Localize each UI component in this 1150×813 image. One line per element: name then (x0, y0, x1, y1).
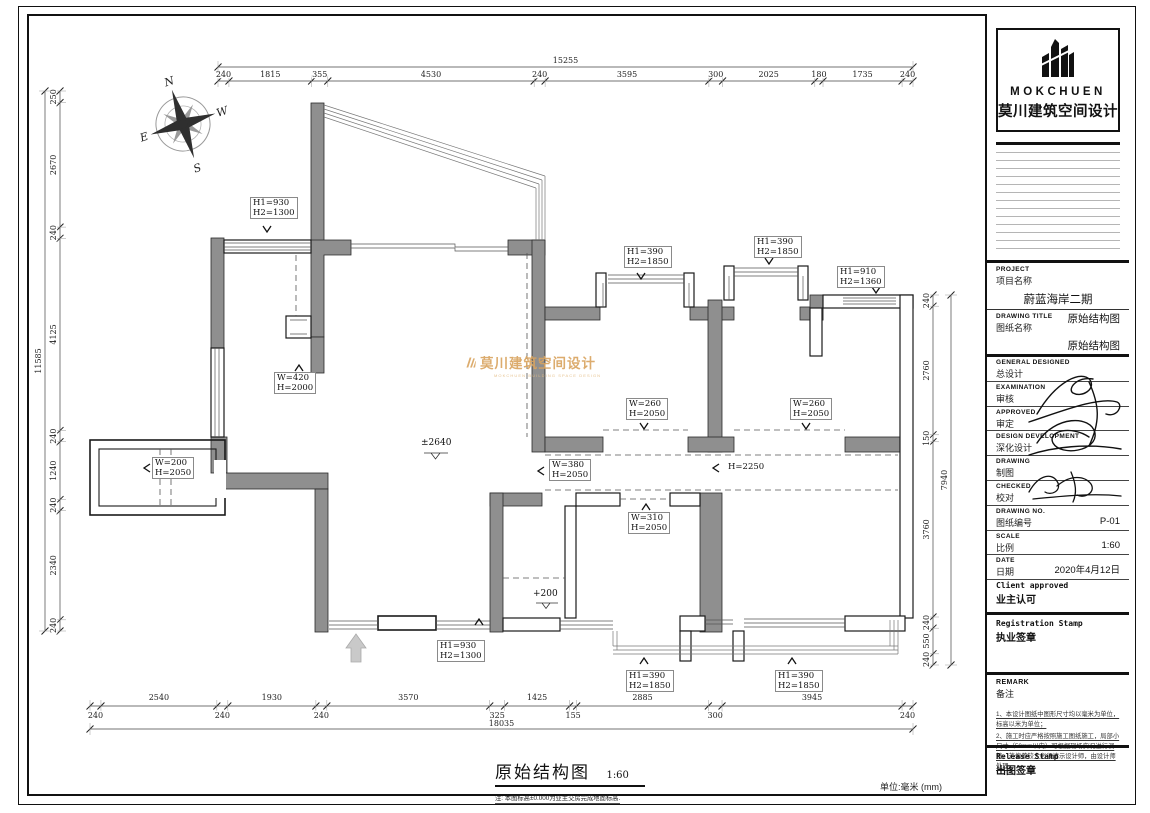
tag-line: W=310 (631, 513, 667, 523)
title-block-row: GENERAL DESIGNED 总设计 (987, 357, 1129, 382)
bath-level: +200 (533, 589, 558, 599)
company-name: 莫川建筑空间设计 (998, 100, 1118, 121)
dim-value: 155 (566, 711, 581, 720)
row-label-zh: 审核 (996, 392, 1120, 405)
dim-value: 4125 (49, 324, 58, 344)
tag-line: H1=390 (778, 671, 820, 681)
address-lines (996, 142, 1120, 252)
dim-value: 1930 (262, 693, 282, 702)
tag-line: W=200 (155, 458, 191, 468)
tag-arrow-opening-dining (713, 464, 719, 472)
brand-name: MOKCHUEN (998, 86, 1118, 98)
tag-arrow-win-bed2 (765, 258, 773, 264)
row-label-zh: 总设计 (996, 367, 1120, 380)
dim-value: 2885 (632, 693, 652, 702)
registration-stamp-en: Registration Stamp (996, 619, 1120, 628)
project-label-en: PROJECT (996, 266, 1120, 273)
dim-value: 240 (215, 711, 230, 720)
compass-south-label: S (192, 161, 204, 176)
tag-win-terrace-1: H1=390H2=1850 (626, 670, 674, 692)
sheet-title-scale: 1:60 (606, 770, 628, 781)
row-label-zh: 审定 (996, 417, 1120, 430)
dim-value: 180 (811, 70, 826, 79)
tag-arrow-door-entry (475, 619, 483, 625)
tag-door-bed2: W=260H=2050 (790, 398, 832, 420)
tag-arrow-door-bed1 (640, 423, 648, 429)
tag-arrow-door-bed2 (802, 423, 810, 429)
watermark-text: 莫川建筑空间设计 (480, 352, 596, 372)
tag-door-room: W=310H=2050 (628, 512, 670, 534)
title-block-row: DESIGN DEVELOPMENT 深化设计 (987, 431, 1129, 456)
tag-line: H2=1850 (627, 257, 669, 267)
title-block-row: CHECKED 校对 (987, 481, 1129, 506)
row-label-en: CHECKED (996, 483, 1120, 490)
remark-label-en: REMARK (996, 679, 1120, 686)
dim-value: 3570 (398, 693, 418, 702)
remark-label-zh: 备注 (996, 687, 1120, 700)
dim-value: 11585 (34, 348, 43, 373)
row-label-en: DRAWING (996, 458, 1120, 465)
sheet-title-underline (495, 785, 645, 787)
registration-stamp-section: Registration Stamp 执业签章 (987, 615, 1129, 675)
entry-arrow-icon (346, 634, 366, 662)
dim-value: 3760 (922, 519, 931, 539)
dim-value: 2340 (49, 555, 58, 575)
tag-line: H1=390 (629, 671, 671, 681)
dim-value: 1735 (852, 70, 872, 79)
dim-value: 240 (922, 652, 931, 667)
dim-value: 240 (922, 615, 931, 630)
client-approved-section: Client approved 业主认可 (987, 577, 1129, 615)
tag-win-bed2: H1=390H2=1850 (754, 236, 802, 258)
tag-line: H=2050 (631, 523, 667, 533)
row-value: P-01 (1100, 516, 1120, 527)
dim-value: 240 (49, 225, 58, 240)
company-logo: MOKCHUEN 莫川建筑空间设计 (996, 28, 1120, 132)
dim-value: 250 (49, 89, 58, 104)
sheet-title-note: 注: 本图标高±0.000为业主交房完成地面标高. (495, 793, 620, 804)
tag-line: H2=1300 (253, 208, 295, 218)
tag-line: H=2050 (793, 409, 829, 419)
dim-value: 1240 (49, 460, 58, 480)
tag-arrow-win-terrace-2 (788, 658, 796, 664)
title-block-row: DRAWING NO. 图纸编号 P-01 (987, 506, 1129, 531)
remark-note-1: 1、本设计图纸中图形尺寸均以毫米为单位，标高以米为单位； (996, 710, 1120, 730)
balcony-rail-lines (324, 105, 545, 240)
dim-value: 240 (49, 429, 58, 444)
tag-door-bed1: W=260H=2050 (626, 398, 668, 420)
tag-line: H2=1360 (840, 277, 882, 287)
unit-note: 单位:毫米 (mm) (880, 780, 942, 793)
title-block-row: SCALE 比例 1:60 (987, 531, 1129, 556)
tag-arrow-bay-window (295, 365, 303, 371)
tag-line: H=2050 (629, 409, 665, 419)
dim-value: 7940 (940, 470, 949, 490)
dim-value: 240 (922, 293, 931, 308)
project-name: 蔚蓝海岸二期 (996, 291, 1120, 307)
title-block-row: APPROVED 审定 (987, 407, 1129, 432)
client-approved-en: Client approved (996, 581, 1120, 590)
dimension-lines: 2401815355453024035953002025180173524015… (34, 56, 957, 735)
drawing-title-label-zh: 图纸名称 (996, 321, 1120, 334)
registration-stamp-zh: 执业签章 (996, 629, 1120, 644)
title-block-row: EXAMINATION 审核 (987, 382, 1129, 407)
tag-line: H2=1850 (757, 247, 799, 257)
drawing-title-label-en: DRAWING TITLE (996, 313, 1120, 320)
watermark: 莫川建筑空间设计 MOKCHUEN BUILDING SPACE DESIGN (466, 350, 596, 378)
tag-line: H2=1850 (629, 681, 671, 691)
title-block-rows: GENERAL DESIGNED 总设计 EXAMINATION 审核 APPR… (987, 354, 1129, 580)
row-label-en: DESIGN DEVELOPMENT (996, 433, 1120, 440)
row-label-en: SCALE (996, 533, 1120, 540)
release-stamp-zh: 出图签章 (996, 762, 1120, 777)
release-stamp-en: Release Stamp (996, 752, 1120, 761)
remark-section: REMARK 备注 1、本设计图纸中图形尺寸均以毫米为单位，标高以米为单位； 2… (987, 675, 1129, 745)
dim-value: 18035 (489, 719, 514, 728)
dim-value: 300 (708, 70, 723, 79)
row-label-en: EXAMINATION (996, 384, 1120, 391)
dim-value: 3595 (617, 70, 637, 79)
buildings-icon (1038, 35, 1078, 77)
tag-line: H=2050 (552, 470, 588, 480)
dim-value: 4530 (421, 70, 441, 79)
tag-arrow-door-room (642, 504, 650, 510)
tag-arrow-win-top-left (263, 226, 271, 232)
tag-win-bed1: H1=390H2=1850 (624, 246, 672, 268)
dim-value: 2540 (149, 693, 169, 702)
row-label-zh: 制图 (996, 466, 1120, 479)
dim-value: 1425 (527, 693, 547, 702)
title-block-panel: MOKCHUEN 莫川建筑空间设计 PROJECT 项目名称 蔚蓝海岸二期 原始… (985, 14, 1127, 796)
floor-plan-drawing: N S E W (0, 0, 985, 813)
row-value: 2020年4月12日 (1055, 562, 1120, 576)
drawing-title-section: DRAWING TITLE 图纸名称 原始结构图 (987, 309, 1129, 354)
compass-east-label: E (137, 130, 150, 145)
sheet-title-text: 原始结构图 (495, 758, 590, 783)
tag-line: H1=390 (627, 247, 669, 257)
tag-line: H1=910 (840, 267, 882, 277)
label-arrows (144, 226, 880, 664)
tag-line: W=260 (793, 399, 829, 409)
compass-north-label: N (162, 74, 176, 90)
row-label-en: GENERAL DESIGNED (996, 359, 1120, 366)
title-block-row: DRAWING 制图 (987, 456, 1129, 481)
tag-opening-dining: H=2250 (726, 462, 766, 472)
tag-bay-window: W=420H=2000 (274, 372, 316, 394)
project-label-zh: 项目名称 (996, 274, 1120, 287)
dim-value: 240 (49, 498, 58, 513)
compass-west-label: W (215, 103, 231, 119)
row-label-zh: 深化设计 (996, 441, 1120, 454)
watermark-logo-icon (466, 350, 476, 374)
compass-icon: N S E W (123, 61, 245, 189)
tag-opening-corridor: W=380H=2050 (549, 459, 591, 481)
dim-value: 3945 (802, 693, 822, 702)
tag-arrow-win-terrace-1 (640, 658, 648, 664)
tag-win-ne: H1=910H2=1360 (837, 266, 885, 288)
drawing-title-value: 原始结构图 (996, 338, 1120, 353)
tag-arrow-opening-corridor (538, 467, 544, 475)
tag-arrow-win-bed1 (637, 273, 645, 279)
dim-value: 150 (922, 431, 931, 446)
dim-value: 240 (900, 711, 915, 720)
tag-line: W=420 (277, 373, 313, 383)
living-level: ±2640 (421, 438, 451, 448)
row-label-en: APPROVED (996, 409, 1120, 416)
dim-value: 2025 (759, 70, 779, 79)
dashed-opening-lines (160, 253, 898, 578)
watermark-subtext: MOKCHUEN BUILDING SPACE DESIGN (494, 373, 596, 378)
tag-win-top-left: H1=930H2=1300 (250, 197, 298, 219)
tag-line: H1=930 (440, 641, 482, 651)
floor-plan-area: N S E W (0, 0, 985, 813)
tag-line: H=2050 (155, 468, 191, 478)
row-label-en: DRAWING NO. (996, 508, 1120, 515)
tag-line: H1=390 (757, 237, 799, 247)
row-label-zh: 校对 (996, 491, 1120, 504)
tag-win-terrace-2: H1=390H2=1850 (775, 670, 823, 692)
tag-door-entry: H1=930H2=1300 (437, 640, 485, 662)
dim-value: 240 (88, 711, 103, 720)
dim-value: 2760 (922, 360, 931, 380)
drawing-sheet: N S E W (0, 0, 1150, 813)
tag-line: H1=930 (253, 198, 295, 208)
client-approved-zh: 业主认可 (996, 591, 1120, 606)
release-stamp-section: Release Stamp 出图签章 (987, 745, 1129, 807)
dim-value: 15255 (553, 56, 578, 65)
tag-line: H2=1850 (778, 681, 820, 691)
dim-value: 240 (532, 70, 547, 79)
dim-value: 355 (312, 70, 327, 79)
tag-door-west: W=200H=2050 (152, 457, 194, 479)
dim-value: 550 (922, 633, 931, 648)
tag-line: W=260 (629, 399, 665, 409)
row-value: 1:60 (1102, 540, 1121, 551)
tag-line: H=2250 (728, 462, 764, 472)
tag-line: H2=1300 (440, 651, 482, 661)
tag-line: W=380 (552, 460, 588, 470)
dim-value: 300 (708, 711, 723, 720)
dim-value: 240 (314, 711, 329, 720)
tag-line: H=2000 (277, 383, 313, 393)
dim-value: 1815 (260, 70, 280, 79)
dim-value: 2670 (49, 155, 58, 175)
tag-arrow-door-west (144, 464, 150, 472)
sheet-title: 原始结构图 1:60 注: 本图标高±0.000为业主交房完成地面标高. (495, 758, 755, 805)
